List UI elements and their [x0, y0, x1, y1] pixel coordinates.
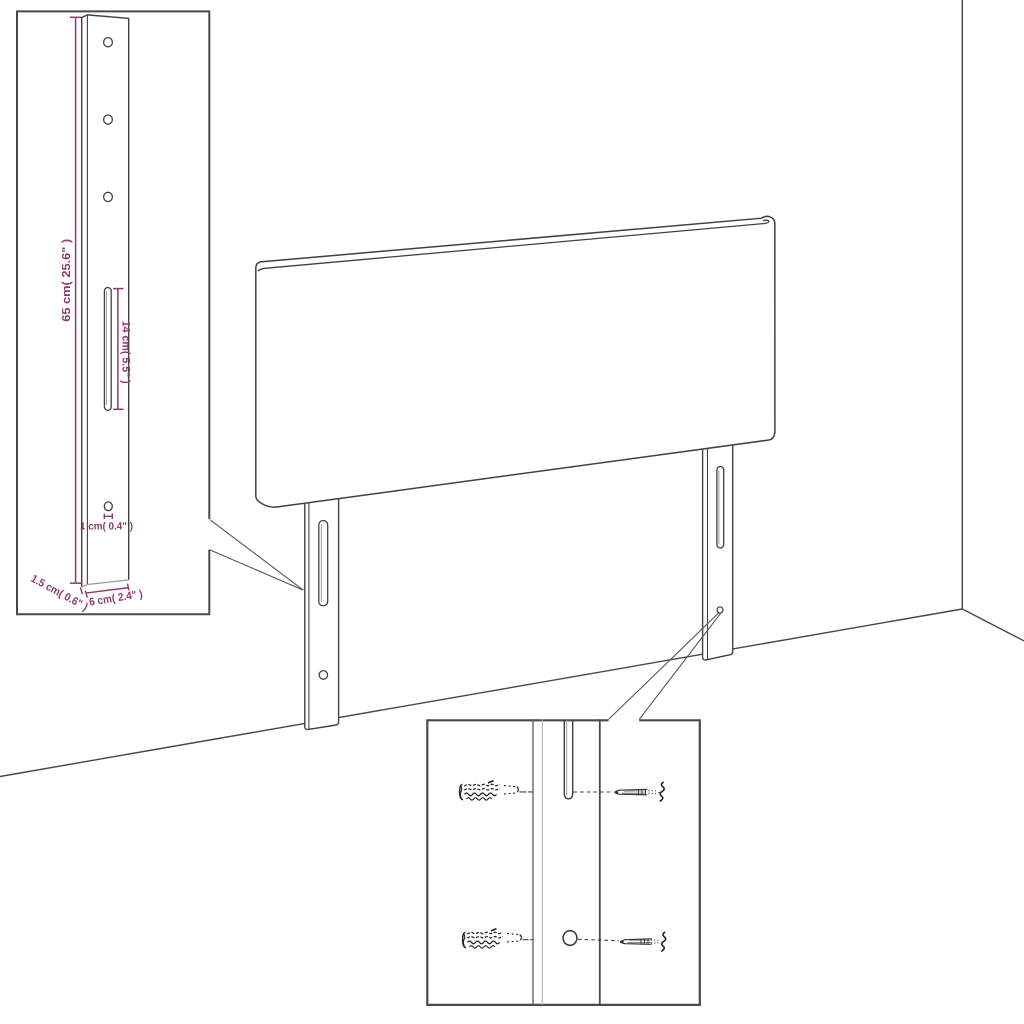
svg-text:65 cm( 25.6" ): 65 cm( 25.6" ) [61, 239, 73, 322]
svg-text:14 cm( 5.5" ): 14 cm( 5.5" ) [120, 321, 132, 384]
svg-text:1 cm( 0.4" ): 1 cm( 0.4" ) [80, 520, 133, 532]
